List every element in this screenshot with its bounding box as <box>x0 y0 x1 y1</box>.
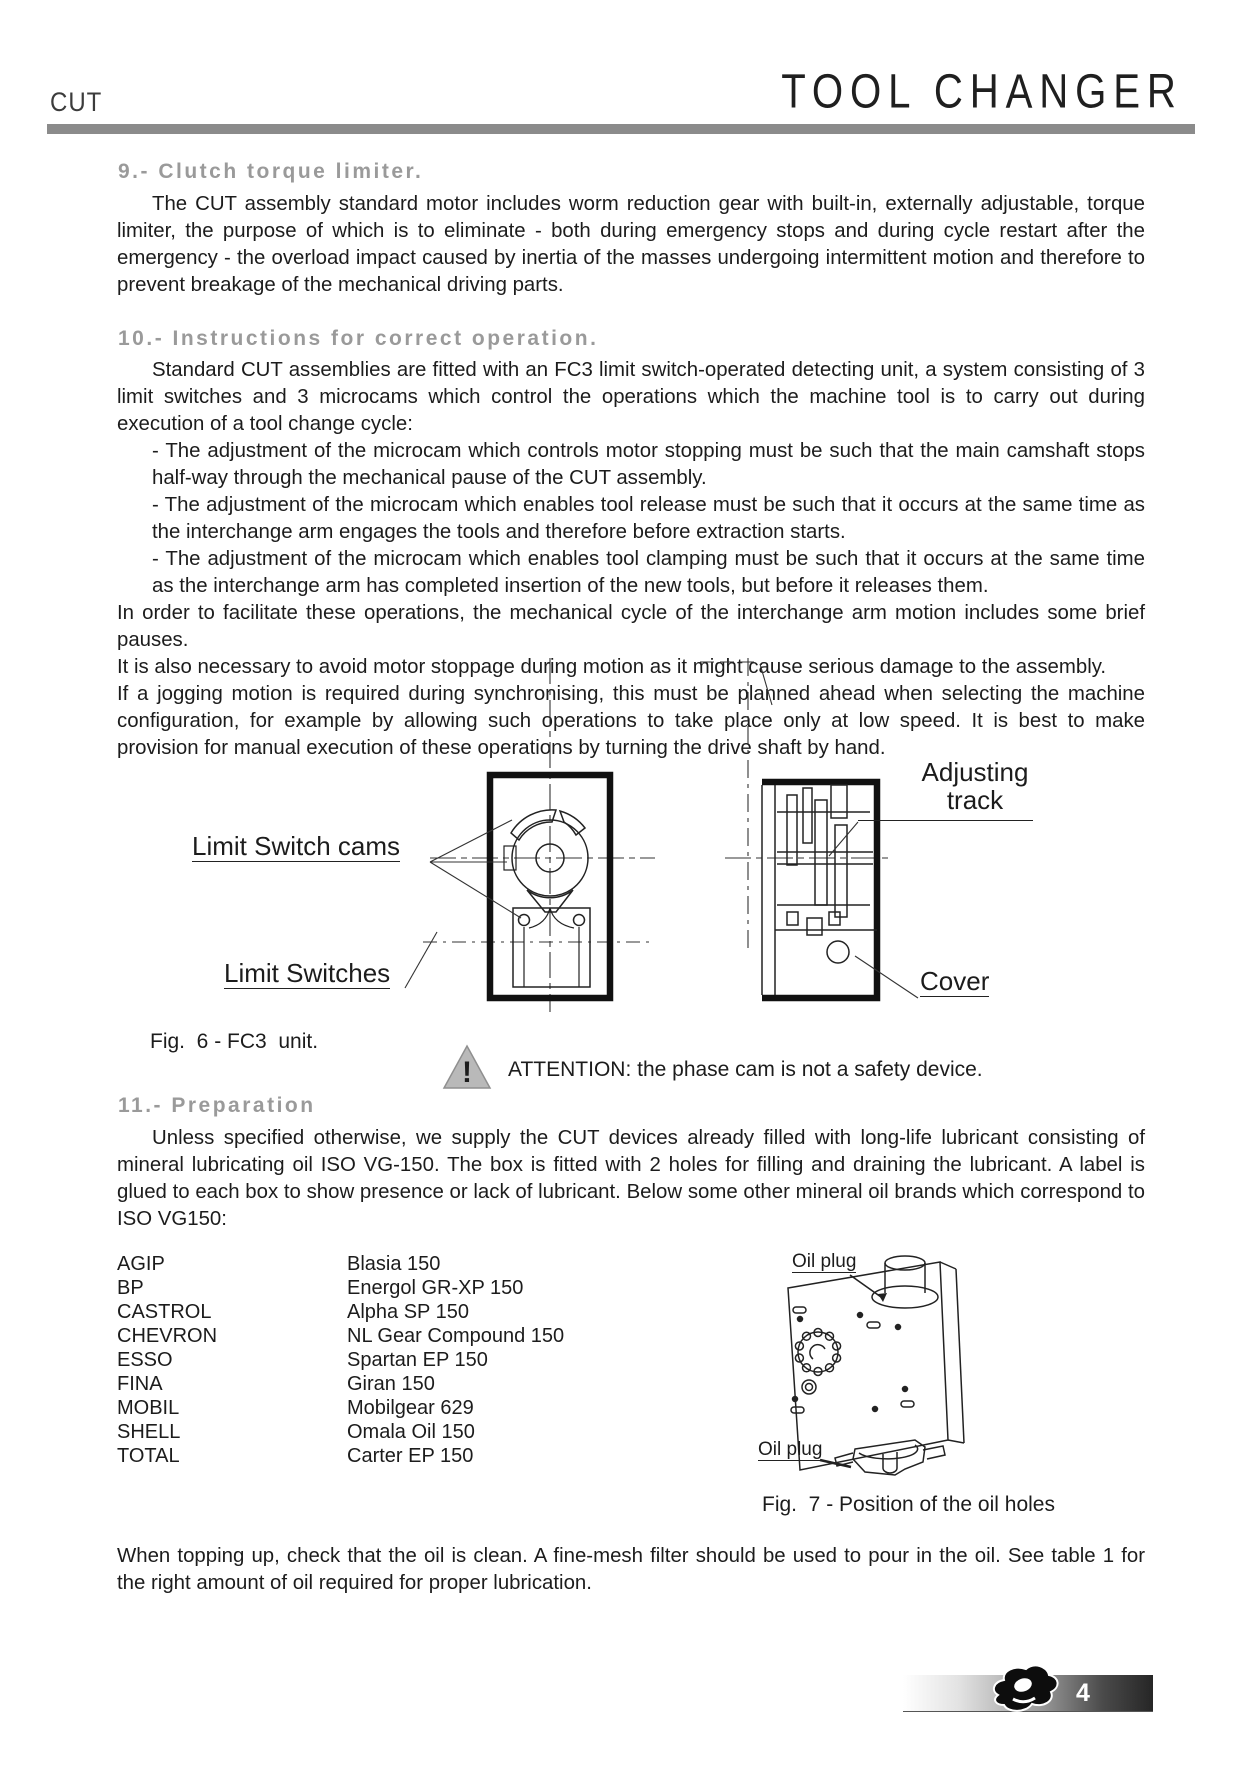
warning-triangle-icon: ! <box>442 1044 492 1090</box>
oil-plug-leader-lines <box>820 1275 887 1467</box>
gearbox-plate-drawing <box>788 1256 964 1470</box>
bottom-bracket-drawing <box>835 1440 945 1475</box>
oil-plug-bottom-label: Oil plug <box>758 1440 822 1461</box>
limit-switches-drawing <box>513 908 590 987</box>
table-row: SHELLOmala Oil 150 <box>117 1420 564 1444</box>
bullet-item: - The adjustment of the microcam which e… <box>152 492 1145 546</box>
adjusting-track-label: Adjusting track <box>905 758 1045 814</box>
table-row: ESSOSpartan EP 150 <box>117 1348 564 1372</box>
section-9-heading: 9.- Clutch torque limiter. <box>118 160 423 184</box>
oil-brands-table: AGIPBlasia 150 BPEnergol GR-XP 150 CASTR… <box>117 1252 564 1468</box>
table-row: MOBILMobilgear 629 <box>117 1396 564 1420</box>
cover-drawing <box>775 930 877 963</box>
brand-logo-icon <box>983 1660 1067 1716</box>
limit-switch-cams-drawing <box>504 810 588 912</box>
section-11-paragraph: Unless specified otherwise, we supply th… <box>117 1125 1145 1233</box>
header-rule <box>47 124 1195 134</box>
section-10-heading: 10.- Instructions for correct operation. <box>118 327 598 351</box>
svg-text:!: ! <box>462 1056 472 1089</box>
section-10-intro: Standard CUT assemblies are fitted with … <box>117 357 1145 438</box>
table-row: AGIPBlasia 150 <box>117 1252 564 1276</box>
table-row: FINAGiran 150 <box>117 1372 564 1396</box>
bullet-item: - The adjustment of the microcam which e… <box>152 546 1145 600</box>
section-11-heading: 11.- Preparation <box>118 1094 316 1118</box>
cover-label: Cover <box>920 968 989 997</box>
limit-switch-cams-label: Limit Switch cams <box>192 833 400 862</box>
product-name: CUT <box>50 88 102 119</box>
section-9-paragraph: The CUT assembly standard motor includes… <box>117 191 1145 299</box>
limit-switches-label: Limit Switches <box>224 960 390 989</box>
page-number: 4 <box>1076 1679 1090 1708</box>
oil-plug-top-label: Oil plug <box>792 1252 856 1273</box>
fc3-side-view <box>700 658 918 998</box>
figure-7-caption: Fig. 7 - Position of the oil holes <box>762 1493 1055 1517</box>
figure-6-caption: Fig. 6 - FC3 unit. <box>150 1030 318 1054</box>
page-title: TOOL CHANGER <box>781 64 1183 119</box>
table-row: CASTROLAlpha SP 150 <box>117 1300 564 1324</box>
cams-leader-lines <box>405 820 521 988</box>
side-view-leader-lines <box>829 822 918 998</box>
table-row: CHEVRONNL Gear Compound 150 <box>117 1324 564 1348</box>
manual-page: CUT TOOL CHANGER 9.- Clutch torque limit… <box>0 0 1241 1766</box>
table-row: TOTALCarter EP 150 <box>117 1444 564 1468</box>
adjusting-track-mechanism <box>777 785 873 935</box>
section-10-paragraph: In order to facilitate these operations,… <box>117 600 1145 654</box>
adjusting-track-underline <box>858 820 1033 821</box>
attention-note: ATTENTION: the phase cam is not a safety… <box>508 1058 1068 1082</box>
table-row: BPEnergol GR-XP 150 <box>117 1276 564 1300</box>
fc3-front-view <box>405 658 655 1012</box>
closing-paragraph: When topping up, check that the oil is c… <box>117 1543 1145 1597</box>
bullet-item: - The adjustment of the microcam which c… <box>152 438 1145 492</box>
